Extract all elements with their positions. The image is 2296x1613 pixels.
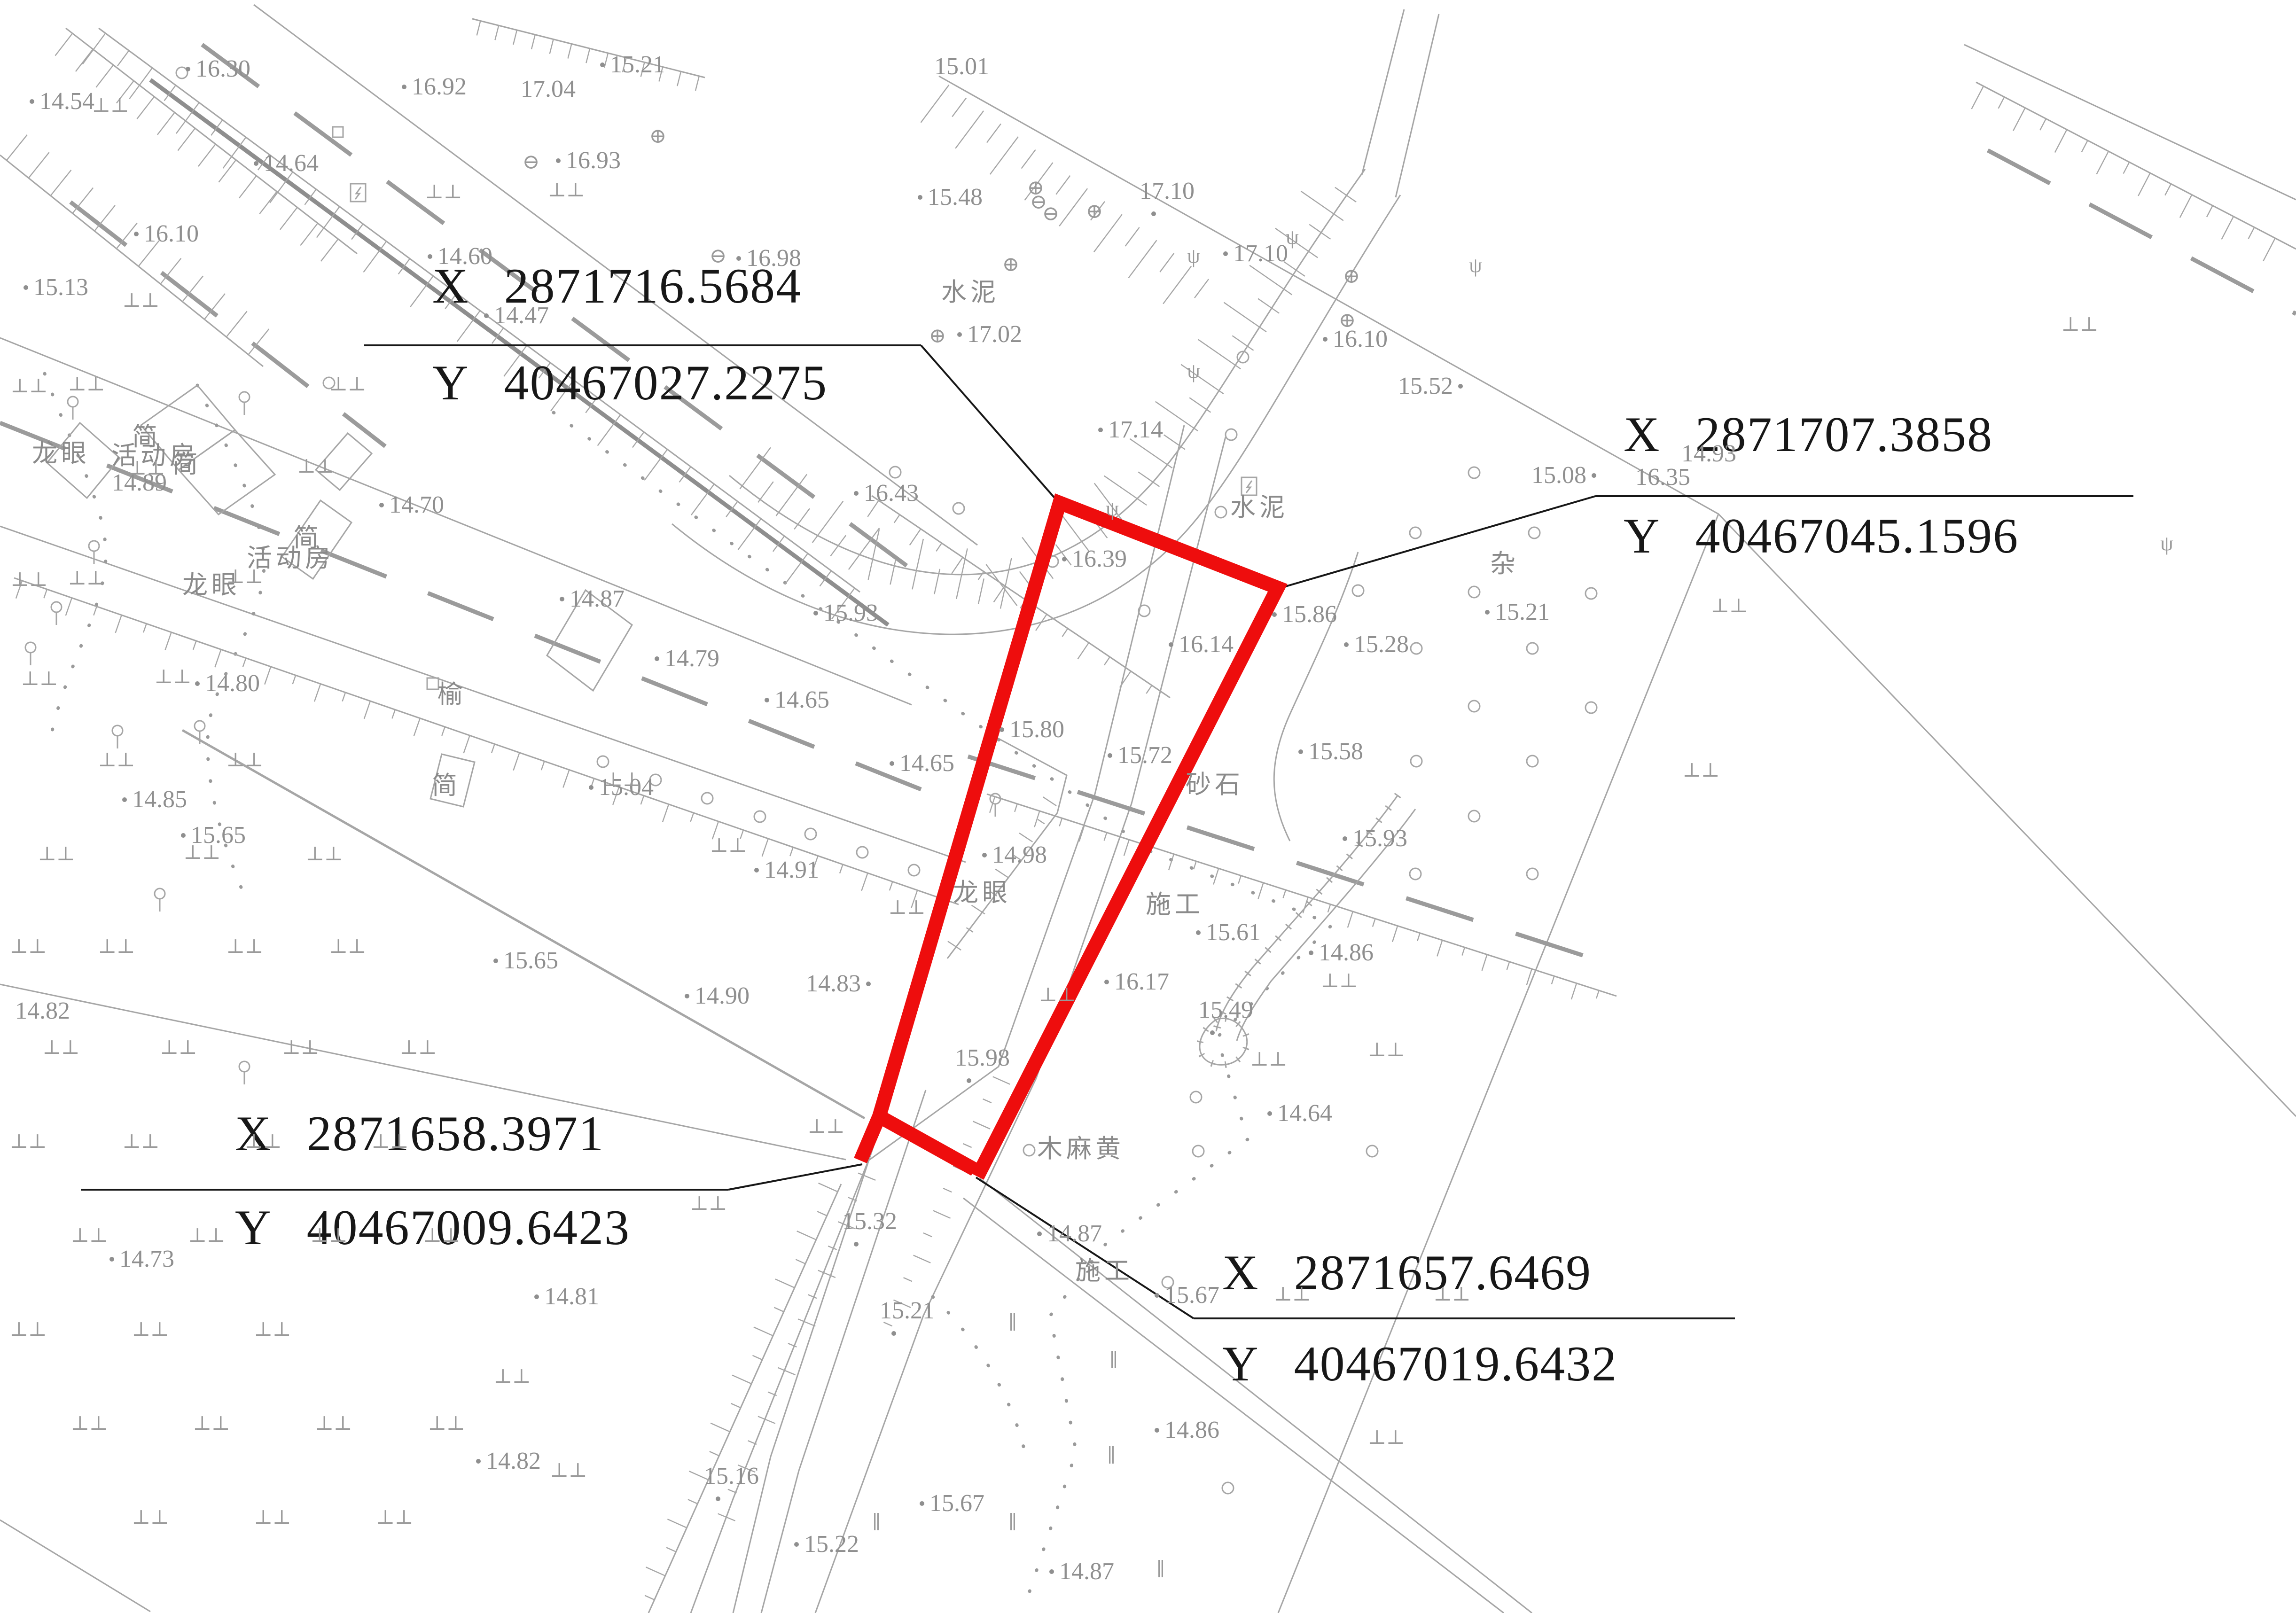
- map-line: [55, 33, 73, 55]
- elevation-dot: [484, 313, 489, 318]
- elevation-value: 14.86: [1319, 941, 1374, 965]
- elevation-value: 15.86: [1282, 602, 1337, 627]
- map-line: [1238, 876, 1241, 884]
- grass-symbol-icon: ⊥⊥: [1434, 1285, 1471, 1304]
- area-label: 水泥: [941, 280, 1000, 305]
- elevation-value: 14.86: [1164, 1418, 1219, 1442]
- elevation-dot: [967, 1078, 971, 1083]
- tree-circle-icon: [702, 793, 713, 804]
- elevation-value: 15.93: [823, 601, 878, 625]
- grass-symbol-icon: ⊥⊥: [311, 1226, 348, 1246]
- map-line: [29, 152, 49, 178]
- map-line: [7, 135, 27, 161]
- fruit-tree-icon: ⊕: [1002, 254, 1020, 275]
- bank-mark-icon: ∥: [1107, 1446, 1116, 1465]
- grass-symbol-icon: ⊥⊥: [315, 1414, 352, 1434]
- map-line: [1250, 265, 1292, 295]
- elevation-dot: [854, 491, 859, 496]
- elevation-dot: [109, 1257, 114, 1262]
- area-label: 龙眼: [953, 880, 1011, 905]
- elevation-value: 14.98: [992, 843, 1047, 867]
- map-line: [1129, 240, 1157, 278]
- elevation-dot: [1592, 473, 1596, 478]
- elevation-dot: [556, 158, 561, 163]
- map-line: [513, 753, 519, 771]
- map-line: [758, 482, 773, 502]
- grass-symbol-icon: ⊥⊥: [132, 1320, 169, 1340]
- elevation-dot: [957, 332, 962, 337]
- tree-circle-icon: [1585, 588, 1597, 599]
- elevation-dot: [736, 256, 741, 261]
- elevation-value: 15.61: [1206, 920, 1261, 945]
- map-line: [1059, 818, 1062, 826]
- grass-symbol-icon: ⊥⊥: [548, 180, 585, 200]
- coordinate-y-row: Y40467019.6432: [1222, 1339, 1617, 1389]
- tree-circle-icon: [195, 721, 205, 731]
- coordinate-value: 2871658.3971: [307, 1109, 605, 1159]
- area-label: 施工: [1075, 1258, 1133, 1284]
- map-line: [300, 223, 318, 245]
- map-line: [243, 658, 246, 667]
- elevation-dot: [1104, 980, 1109, 984]
- elevation-dot: [402, 85, 406, 89]
- tree-circle-icon: [1411, 756, 1422, 767]
- area-label: 榆: [437, 682, 467, 707]
- elevation-value: 14.64: [1277, 1101, 1332, 1126]
- map-line: [1038, 819, 1045, 824]
- map-line: [978, 571, 984, 579]
- elevation-dot: [918, 195, 922, 200]
- grass-symbol-icon: ⊥⊥: [1039, 985, 1076, 1005]
- map-line: [817, 1211, 827, 1216]
- bank-mark-icon: ∥: [1109, 1351, 1118, 1370]
- map-line: [796, 1259, 805, 1263]
- elevation-value: 15.22: [804, 1532, 859, 1557]
- map-line: [178, 128, 195, 150]
- grass-tuft-icon: ψ: [1286, 227, 1299, 248]
- grass-symbol-icon: ⊥⊥: [1250, 1050, 1288, 1069]
- map-line: [94, 607, 97, 616]
- map-line: [904, 1278, 912, 1281]
- map-line: [1972, 86, 1984, 109]
- elevation-value: 16.35: [1635, 465, 1690, 490]
- map-line: [182, 730, 865, 1118]
- elevation-dot: [1049, 1569, 1054, 1574]
- grass-symbol-icon: ⊥⊥: [329, 374, 367, 394]
- map-line: [952, 557, 963, 574]
- map-line: [1019, 833, 1032, 842]
- grass-symbol-icon: ⊥⊥: [92, 96, 129, 116]
- grass-symbol-icon: ⊥⊥: [1368, 1428, 1405, 1448]
- tree-circle-icon: [239, 392, 250, 402]
- elevation-dot: [1323, 337, 1328, 342]
- grass-symbol-icon: ⊥⊥: [226, 750, 264, 770]
- elevation-value: 15.80: [1009, 717, 1064, 742]
- map-line: [2097, 151, 2109, 174]
- elevation-value: 14.93: [1681, 442, 1736, 466]
- map-line: [667, 1519, 687, 1527]
- coordinate-y-row: Y40467027.2275: [432, 358, 828, 408]
- map-line: [239, 176, 257, 198]
- map-line: [586, 48, 590, 63]
- elevation-value: 14.91: [764, 858, 819, 882]
- grass-symbol-icon: ⊥⊥: [11, 376, 48, 396]
- elevation-value: 16.98: [746, 246, 801, 271]
- map-line: [1056, 176, 1070, 195]
- elevation-dot: [716, 1496, 720, 1501]
- tree-circle-icon: [1226, 429, 1237, 440]
- elevation-dot: [493, 958, 498, 963]
- coordinate-prefix: X: [1222, 1248, 1259, 1298]
- map-line: [137, 97, 154, 119]
- elevation-dot: [765, 698, 769, 702]
- area-label: 砂石: [1186, 772, 1244, 797]
- area-label: 木麻黄: [1037, 1136, 1125, 1161]
- coordinate-value: 40467019.6432: [1294, 1339, 1618, 1389]
- elevation-dot: [1155, 1293, 1159, 1298]
- elevation-dot: [1485, 610, 1490, 615]
- grass-symbol-icon: ⊥⊥: [494, 1367, 531, 1387]
- grass-symbol-icon: ⊥⊥: [123, 291, 160, 311]
- elevation-dot: [754, 868, 759, 873]
- map-line: [414, 718, 420, 736]
- map-line: [840, 865, 843, 873]
- map-line: [1213, 868, 1218, 884]
- map-line: [2263, 238, 2275, 261]
- map-line: [165, 632, 171, 650]
- elevation-dot: [794, 1542, 799, 1547]
- map-line: [116, 615, 122, 633]
- map-line: [731, 1403, 741, 1408]
- grass-symbol-icon: ⊥⊥: [423, 1226, 461, 1246]
- elevation-dot: [890, 761, 894, 766]
- map-line: [1194, 861, 1196, 869]
- elevation-dot: [23, 285, 28, 290]
- map-line: [677, 71, 681, 86]
- elevation-value: 14.82: [486, 1449, 541, 1473]
- map-line: [550, 39, 554, 54]
- elevation-dot: [134, 232, 139, 236]
- elevation-value: 15.93: [1352, 826, 1407, 851]
- elevation-dot: [379, 503, 384, 507]
- map-line: [0, 155, 263, 366]
- grass-symbol-icon: ⊥⊥: [808, 1117, 845, 1137]
- map-line: [1392, 926, 1398, 942]
- map-line: [1328, 904, 1331, 912]
- elevation-dot: [1037, 1231, 1042, 1236]
- tree-circle-icon: [1023, 1145, 1035, 1156]
- map-line: [1462, 947, 1465, 955]
- map-line: [728, 1164, 862, 1190]
- elevation-dot: [1458, 384, 1463, 389]
- tree-circle-icon: [89, 541, 99, 551]
- map-line: [1482, 955, 1487, 971]
- elevation-value: 15.48: [928, 185, 983, 210]
- elevation-value: 16.92: [412, 75, 467, 99]
- map-line: [976, 1177, 1194, 1318]
- tree-circle-icon: [1367, 1145, 1378, 1157]
- grass-symbol-icon: ⊥⊥: [98, 937, 135, 957]
- grass-symbol-icon: ⊥⊥: [98, 750, 135, 770]
- map-line: [1988, 150, 2296, 314]
- tree-circle-icon: [1352, 585, 1364, 596]
- coordinate-value: 2871707.3858: [1695, 410, 1993, 460]
- map-line: [83, 33, 106, 64]
- map-line: [472, 19, 705, 78]
- grass-symbol-icon: ⊥⊥: [690, 1194, 727, 1214]
- map-line: [513, 30, 517, 45]
- map-line: [711, 1423, 730, 1432]
- grass-symbol-icon: ⊥⊥: [710, 836, 747, 856]
- elevation-dot: [1196, 930, 1201, 935]
- coordinate-prefix: Y: [432, 358, 469, 408]
- elevation-dot: [30, 99, 34, 104]
- tree-circle-icon: [1222, 1482, 1234, 1494]
- grass-symbol-icon: ⊥⊥: [1711, 596, 1748, 616]
- map-line: [1125, 227, 1140, 246]
- area-label: 杂: [1490, 551, 1519, 577]
- map-line: [157, 112, 175, 134]
- elevation-dot: [685, 994, 689, 998]
- fruit-tree-icon: ⊕: [1343, 266, 1360, 287]
- grass-symbol-icon: ⊥⊥: [550, 1461, 587, 1481]
- map-line: [226, 312, 247, 337]
- grass-symbol-icon: ⊥⊥: [71, 1414, 108, 1434]
- elevation-value: 14.80: [205, 671, 260, 696]
- elevation-value: 16.30: [195, 57, 250, 81]
- elevation-dot: [186, 67, 190, 71]
- map-line: [1309, 225, 1330, 239]
- grass-symbol-icon: ⊥⊥: [1321, 971, 1358, 991]
- map-line: [66, 598, 72, 616]
- map-line: [778, 1368, 796, 1375]
- elevation-dot: [1210, 1030, 1215, 1035]
- map-line: [753, 1356, 763, 1360]
- elevation-value: 16.39: [1072, 547, 1127, 571]
- map-line: [1396, 14, 1439, 197]
- grass-symbol-icon: ⊥⊥: [132, 1508, 169, 1527]
- map-line: [666, 1547, 676, 1551]
- elevation-value: 15.21: [880, 1299, 935, 1323]
- map-line: [1079, 826, 1085, 842]
- map-line: [2055, 130, 2067, 153]
- elevation-dot: [1169, 642, 1173, 647]
- map-line: [2222, 217, 2234, 240]
- tree-circle-icon: [1410, 527, 1421, 538]
- elevation-value: 16.10: [144, 222, 199, 246]
- elevation-dot: [1343, 836, 1347, 841]
- map-line: [943, 1188, 952, 1192]
- area-label: 施工: [1146, 892, 1204, 917]
- map-line: [1078, 643, 1089, 659]
- map-line: [215, 649, 221, 667]
- elevation-dot: [1223, 251, 1228, 256]
- grass-symbol-icon: ⊥⊥: [38, 844, 75, 864]
- grass-symbol-icon: ⊥⊥: [226, 937, 264, 957]
- map-line: [51, 170, 71, 196]
- elevation-value: 14.85: [132, 787, 187, 812]
- map-line: [392, 709, 395, 718]
- map-line: [1301, 191, 1343, 221]
- elevation-dot: [254, 161, 258, 166]
- grass-symbol-icon: ⊥⊥: [43, 1038, 80, 1058]
- map-line: [117, 51, 129, 66]
- map-line: [2124, 162, 2130, 173]
- map-path: [1246, 481, 1252, 493]
- map-line: [1036, 614, 1047, 631]
- elevation-value: 14.64: [264, 151, 319, 176]
- map-line: [1373, 919, 1375, 927]
- tree-circle-icon: [239, 1061, 250, 1072]
- map-line: [808, 1295, 817, 1299]
- grass-symbol-icon: ⊥⊥: [184, 843, 221, 863]
- elevation-value: 14.87: [570, 587, 625, 611]
- map-line: [343, 693, 346, 701]
- map-line: [293, 675, 296, 684]
- tree-circle-icon: [1527, 643, 1538, 654]
- coordinate-prefix: Y: [1222, 1339, 1259, 1389]
- map-path: [1278, 514, 1718, 1613]
- elevation-value: 15.65: [503, 949, 558, 973]
- map-line: [2040, 119, 2046, 130]
- map-line: [477, 21, 481, 35]
- map-line: [1198, 340, 1241, 369]
- map-line: [1146, 686, 1152, 694]
- map-line: [14, 578, 959, 904]
- grass-symbol-icon: ⊥⊥: [1368, 1040, 1405, 1060]
- map-line: [1232, 335, 1253, 350]
- map-line: [797, 1231, 816, 1239]
- survey-map-canvas: X2871716.5684 Y40467027.2275 X2871707.38…: [0, 0, 2296, 1613]
- map-line: [442, 727, 445, 736]
- lamp-symbol-icon: ⊖: [1042, 203, 1060, 224]
- map-line: [921, 345, 1060, 504]
- fruit-tree-icon: ⊕: [929, 326, 946, 346]
- tree-circle-icon: [1190, 1091, 1202, 1103]
- tree-circle-icon: [1468, 586, 1480, 598]
- coordinate-y-row: Y40467045.1596: [1624, 511, 2019, 561]
- map-linework-layer: [0, 0, 2296, 1613]
- elevation-dot: [428, 254, 432, 259]
- map-line: [1160, 253, 1174, 272]
- elevation-value: 14.87: [1047, 1222, 1102, 1246]
- map-line: [978, 578, 984, 604]
- tree-circle-icon: [857, 847, 868, 858]
- grass-symbol-icon: ⊥⊥: [226, 567, 264, 587]
- map-line: [1195, 279, 1209, 298]
- map-line: [198, 144, 216, 166]
- map-line: [818, 1270, 836, 1278]
- map-line: [1964, 45, 2296, 200]
- elevation-value: 14.79: [664, 647, 719, 671]
- map-line: [364, 701, 370, 719]
- grass-tuft-icon: ψ: [1187, 361, 1200, 382]
- map-line: [1258, 883, 1263, 899]
- map-line: [1169, 854, 1174, 870]
- elevation-value: 14.47: [494, 304, 549, 328]
- map-line: [321, 239, 338, 261]
- tree-circle-icon: [25, 642, 36, 653]
- map-line: [1437, 940, 1442, 956]
- lamp-symbol-icon: ⊖: [710, 246, 727, 266]
- fruit-tree-icon: ⊕: [649, 126, 667, 147]
- map-line: [1059, 188, 1087, 226]
- grass-symbol-icon: ⊥⊥: [10, 1320, 47, 1340]
- map-line: [563, 770, 569, 787]
- tree-circle-icon: [155, 888, 165, 899]
- grass-tuft-icon: ψ: [1469, 255, 1482, 276]
- map-line: [1022, 150, 1036, 169]
- coordinate-prefix: Y: [235, 1203, 272, 1253]
- map-line: [495, 25, 499, 40]
- elevation-value: 15.32: [842, 1209, 897, 1234]
- map-line: [1189, 397, 1210, 412]
- map-line: [2180, 195, 2192, 218]
- map-line: [923, 1233, 932, 1237]
- tree-circle-icon: [68, 397, 78, 407]
- elevation-dot: [1272, 612, 1277, 617]
- map-line: [259, 192, 277, 214]
- tree-circle-icon: [1468, 701, 1480, 712]
- elevation-dot: [854, 1242, 859, 1247]
- map-line: [2082, 140, 2088, 152]
- map-line: [819, 1183, 838, 1192]
- elevation-value: 17.02: [967, 322, 1022, 347]
- grass-symbol-icon: ⊥⊥: [282, 1038, 320, 1058]
- map-line: [894, 514, 900, 522]
- map-line: [690, 813, 694, 822]
- tree-circle-icon: [112, 725, 123, 736]
- map-line: [1224, 303, 1266, 332]
- coordinate-value: 40467009.6423: [307, 1203, 631, 1253]
- elevation-value: 14.83: [806, 972, 861, 996]
- grass-symbol-icon: ⊥⊥: [376, 1508, 414, 1527]
- tree-circle-icon: [953, 503, 964, 514]
- map-line: [604, 53, 608, 68]
- fruit-tree-icon: ⊕: [1086, 201, 1103, 222]
- elevation-dot: [1298, 749, 1303, 754]
- map-line: [44, 589, 47, 598]
- elevation-dot: [866, 982, 871, 986]
- grass-tuft-icon: ψ: [1187, 246, 1200, 266]
- elevation-dot: [1151, 211, 1156, 216]
- grass-symbol-icon: ⊥⊥: [428, 1414, 465, 1434]
- grass-symbol-icon: ⊥⊥: [21, 669, 58, 689]
- map-line: [1278, 496, 1595, 589]
- map-line: [1976, 82, 2296, 249]
- elevation-dot: [982, 853, 987, 857]
- grass-symbol-icon: ⊥⊥: [604, 770, 641, 790]
- elevation-value: 14.54: [39, 89, 94, 114]
- map-line: [143, 623, 147, 632]
- coordinate-value: 40467027.2275: [504, 358, 828, 408]
- map-line: [993, 1076, 1010, 1084]
- map-line: [798, 1319, 815, 1326]
- elevation-dot: [1098, 428, 1103, 432]
- map-line: [646, 1567, 665, 1575]
- map-line: [117, 223, 137, 249]
- map-line: [531, 35, 535, 49]
- elevation-value: 15.21: [1495, 600, 1550, 624]
- elevation-dot: [920, 1501, 924, 1506]
- coordinate-prefix: Y: [1624, 511, 1661, 561]
- map-line: [758, 1416, 775, 1423]
- map-line: [728, 1489, 736, 1493]
- grass-symbol-icon: ⊥⊥: [372, 1132, 409, 1152]
- bank-mark-icon: ∥: [1008, 1513, 1017, 1532]
- fruit-tree-icon: ⊕: [1339, 310, 1356, 331]
- map-line: [963, 1144, 971, 1147]
